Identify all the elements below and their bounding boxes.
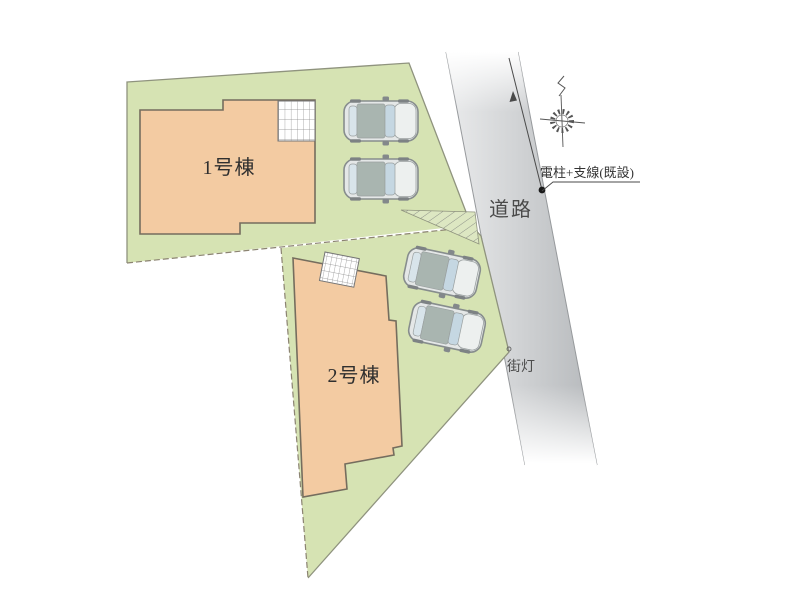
car-1	[344, 97, 418, 146]
street-light-label: 街灯	[507, 359, 535, 375]
road-label: 道路	[489, 198, 533, 221]
utility-pole-label: 電柱+支線(既設)	[540, 165, 634, 180]
building-2-balcony	[319, 252, 359, 287]
site-plan-drawing: 1号棟 2号棟 道路 街灯 電柱+支線(既設)	[0, 0, 800, 600]
car-2	[344, 155, 418, 204]
site-plan-canvas: 1号棟 2号棟 道路 街灯 電柱+支線(既設)	[0, 0, 800, 600]
utility-pole-icon	[539, 187, 546, 194]
building-2-label: 2号棟	[328, 364, 381, 387]
annotation-leader-line	[542, 182, 640, 191]
building-1: 1号棟	[140, 100, 315, 234]
building-1-label: 1号棟	[203, 156, 256, 179]
building-1-balcony	[278, 101, 315, 141]
north-compass-icon	[540, 76, 585, 147]
